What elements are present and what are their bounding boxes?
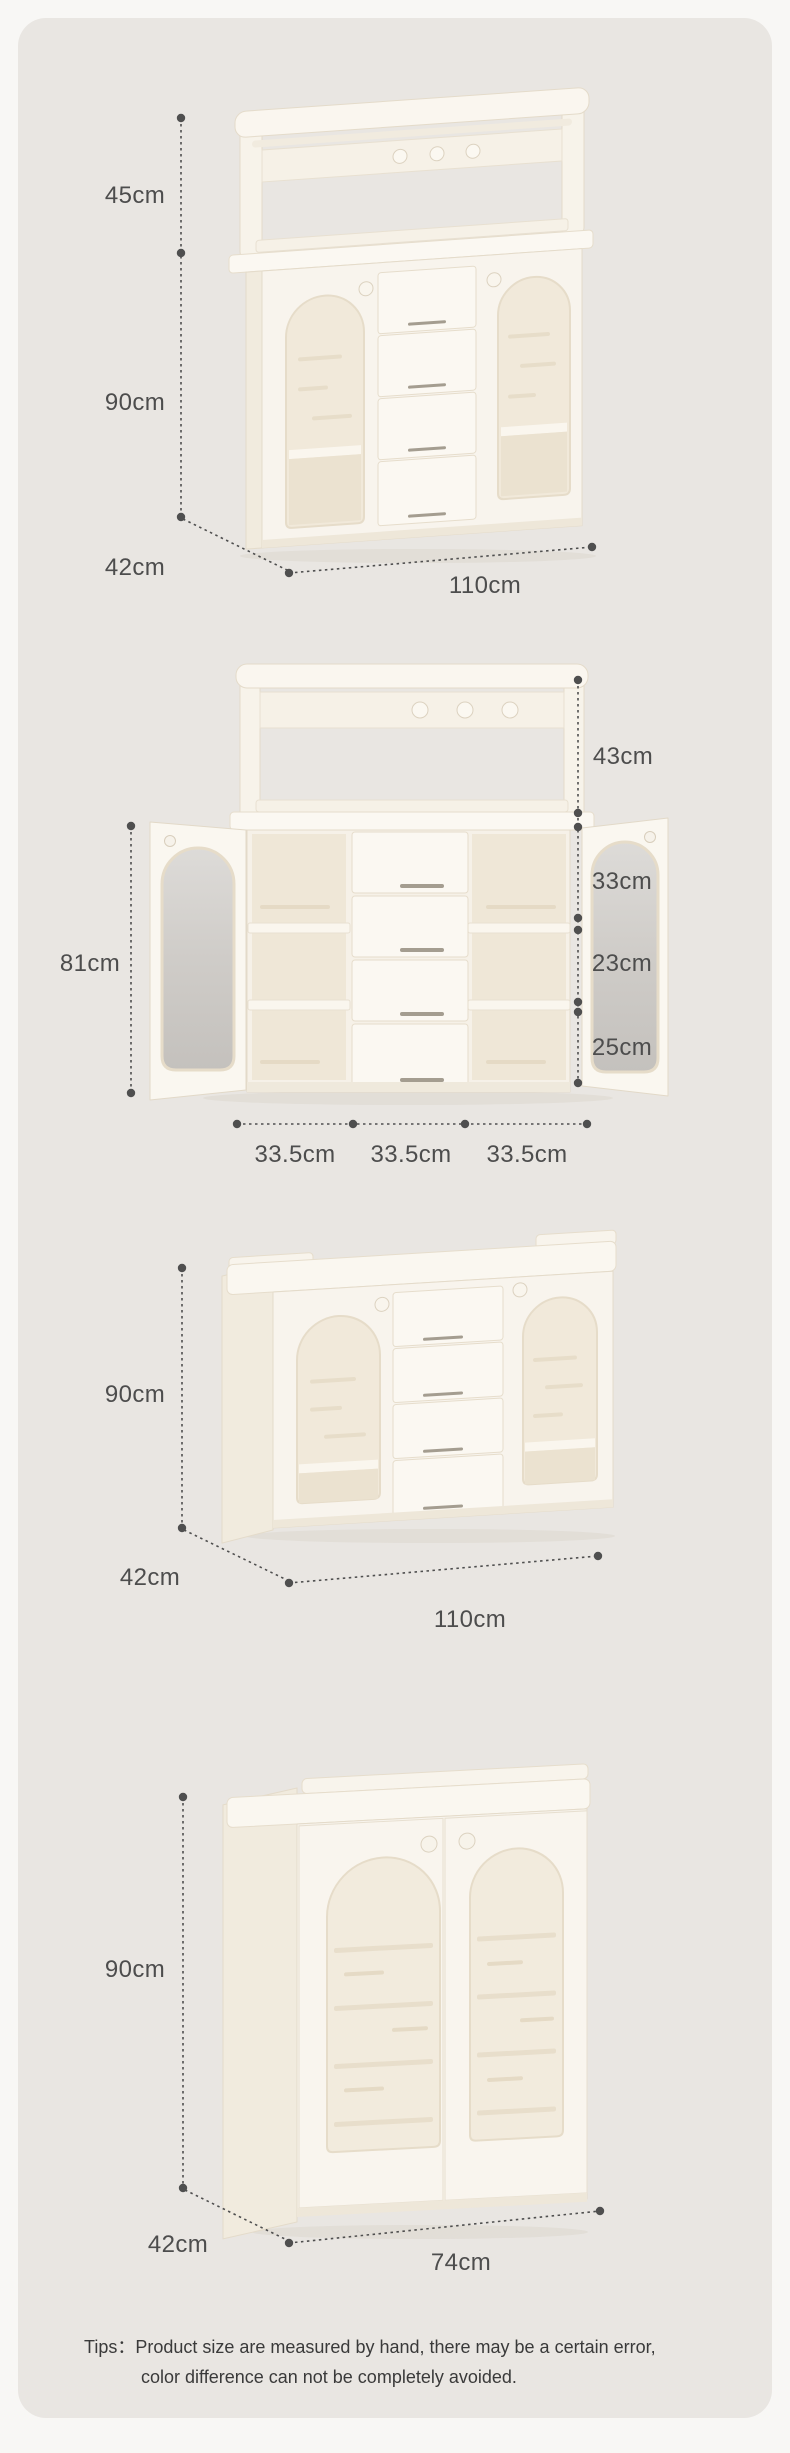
product-illustrations [0,0,790,2453]
dim-small-depth: 42cm [148,2231,208,2259]
floor-shadow [203,1091,613,1105]
product-dimensions-page: { "page": { "background": "#f8f7f5", "ca… [0,0,790,2453]
door-knob [459,1833,475,1850]
hook-knob [466,144,480,159]
dim-base-depth: 42cm [120,1564,180,1592]
door-knob [359,281,373,296]
tips-line-2: color difference can not be completely a… [84,2362,744,2392]
dim-row-3: 25cm [592,1034,652,1062]
dim-row-1: 33cm [592,868,652,896]
tips-line-1: Tips：Product size are measured by hand, … [84,2332,744,2362]
hook-knob [502,702,518,718]
door-knob [375,1297,389,1312]
hook-knob [393,149,407,164]
dim-base-height: 90cm [105,1381,165,1409]
dim-width: 110cm [449,572,521,600]
product-view-hutch-cabinet [229,87,593,550]
hook-knob [457,702,473,718]
floor-shadow [245,1529,615,1543]
hook-knob [412,702,428,718]
dim-body-height: 90cm [105,389,165,417]
hook-knob [430,146,444,161]
product-view-base-cabinet [222,1230,616,1543]
dim-small-width: 74cm [431,2249,491,2277]
floor-shadow [240,549,596,563]
product-view-open-cabinet [150,664,668,1100]
dim-open-hutch: 43cm [593,743,653,771]
door-knob [487,272,501,287]
floor-shadow [252,2225,588,2239]
door-knob [513,1282,527,1297]
dim-hutch-height: 45cm [105,182,165,210]
door-knob [421,1836,437,1853]
dim-col-1: 33.5cm [254,1141,335,1169]
dim-depth: 42cm [105,554,165,582]
dim-col-3: 33.5cm [486,1141,567,1169]
dim-row-2: 23cm [592,950,652,978]
dim-small-height: 90cm [105,1956,165,1984]
dim-base-width: 110cm [434,1606,506,1634]
dim-open-height: 81cm [60,950,120,978]
door-glass [162,848,234,1070]
product-view-two-door-cabinet [223,1764,590,2239]
tips-note: Tips：Product size are measured by hand, … [84,2332,744,2392]
dim-col-2: 33.5cm [370,1141,451,1169]
tips-prefix: Tips： [84,2337,135,2357]
